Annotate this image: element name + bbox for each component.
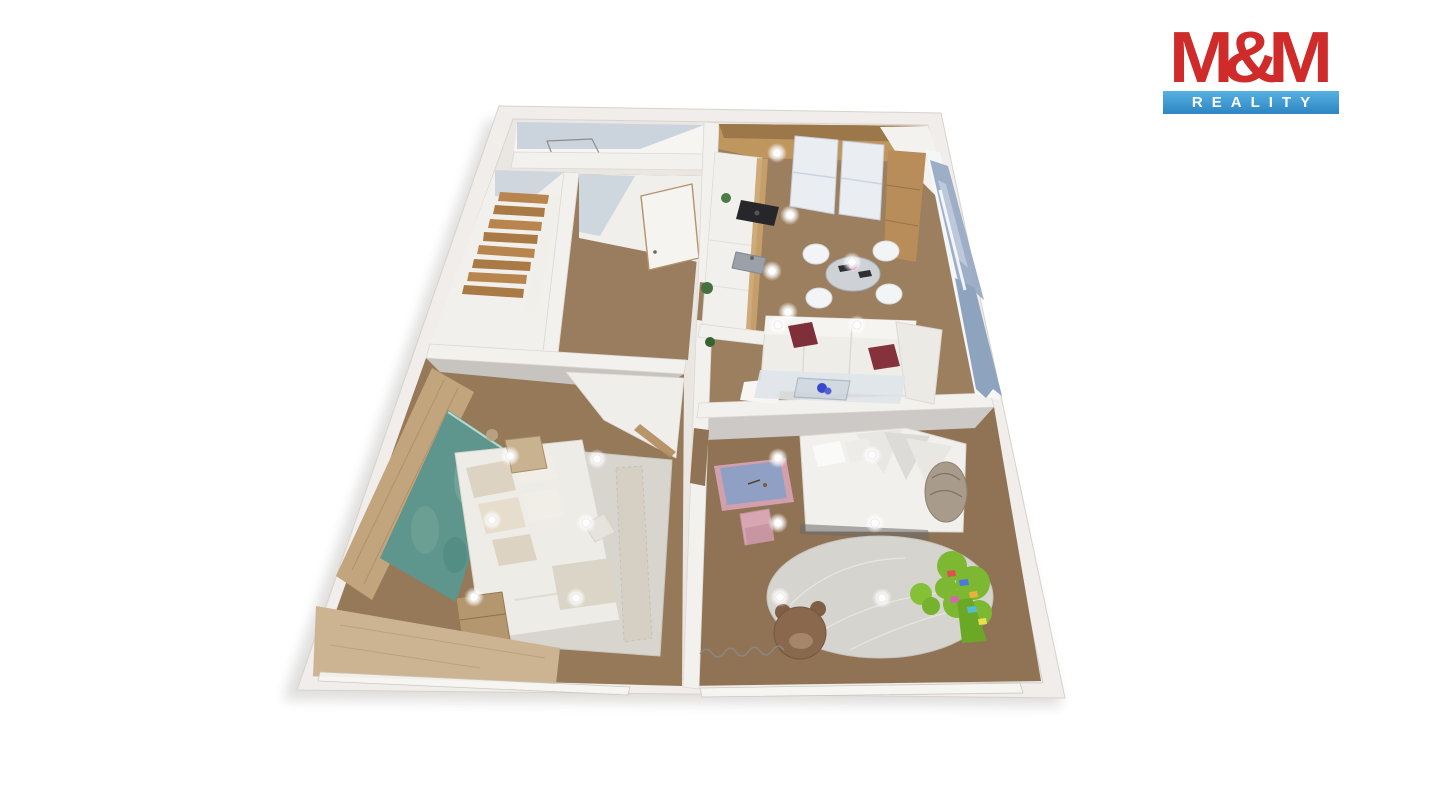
dining-chair	[803, 244, 829, 264]
ceiling-light	[470, 593, 478, 601]
floorplan-shape-layer	[283, 106, 1065, 706]
teal-rug-texture	[443, 537, 467, 573]
dining-chair	[873, 241, 899, 261]
ceiling-light	[774, 454, 782, 462]
dining-chair	[806, 288, 832, 308]
living-wall-plant	[705, 337, 715, 347]
real-estate-render-page: M&M REALITY	[0, 0, 1440, 810]
ceiling-light	[784, 308, 792, 316]
ceiling-light	[853, 321, 861, 329]
sink-faucet	[750, 256, 754, 260]
shelf-book	[950, 596, 959, 603]
teddy-beanbag	[774, 607, 826, 659]
ceiling-light	[773, 149, 781, 157]
dried-plant	[486, 429, 498, 441]
ceiling-light	[488, 516, 496, 524]
shelf-book	[947, 570, 956, 577]
ceiling-light	[848, 258, 856, 266]
wicker-chair	[925, 462, 967, 522]
ceiling-light	[506, 452, 514, 460]
ceiling-light	[786, 211, 794, 219]
coffee-table-flowers	[825, 388, 832, 395]
ceiling-light	[868, 451, 876, 459]
ceiling-light	[582, 519, 590, 527]
floorplan	[0, 0, 1440, 810]
ceiling-light	[774, 321, 782, 329]
ceiling-light	[768, 267, 776, 275]
hall-door	[641, 184, 699, 270]
desk-toy	[763, 483, 767, 487]
shelf-book	[978, 618, 987, 625]
shelf-book	[959, 579, 969, 586]
shelf-book	[969, 591, 978, 598]
teal-rug-texture	[411, 506, 439, 554]
ceiling-light	[776, 593, 784, 601]
ceiling-light	[593, 455, 601, 463]
teddy-muzzle	[789, 633, 813, 649]
mm-logo-text: M&M	[1156, 28, 1346, 88]
ceiling-light	[878, 594, 886, 602]
dining-chair	[876, 284, 902, 304]
green-bush	[922, 597, 940, 615]
tree-shelf-foliage	[935, 577, 957, 599]
cooktop-knob	[755, 211, 760, 216]
bed-pillow	[522, 488, 566, 522]
living-wall-plant	[701, 282, 713, 294]
ceiling-light	[871, 519, 879, 527]
shelf-book	[967, 606, 977, 613]
mm-reality-logo: M&M REALITY	[1163, 28, 1339, 114]
ceiling-light	[572, 594, 580, 602]
kitchen-plant	[721, 193, 731, 203]
strip-bottom-wall	[511, 152, 707, 170]
hall-door-handle	[653, 250, 657, 254]
ceiling-light	[774, 519, 782, 527]
